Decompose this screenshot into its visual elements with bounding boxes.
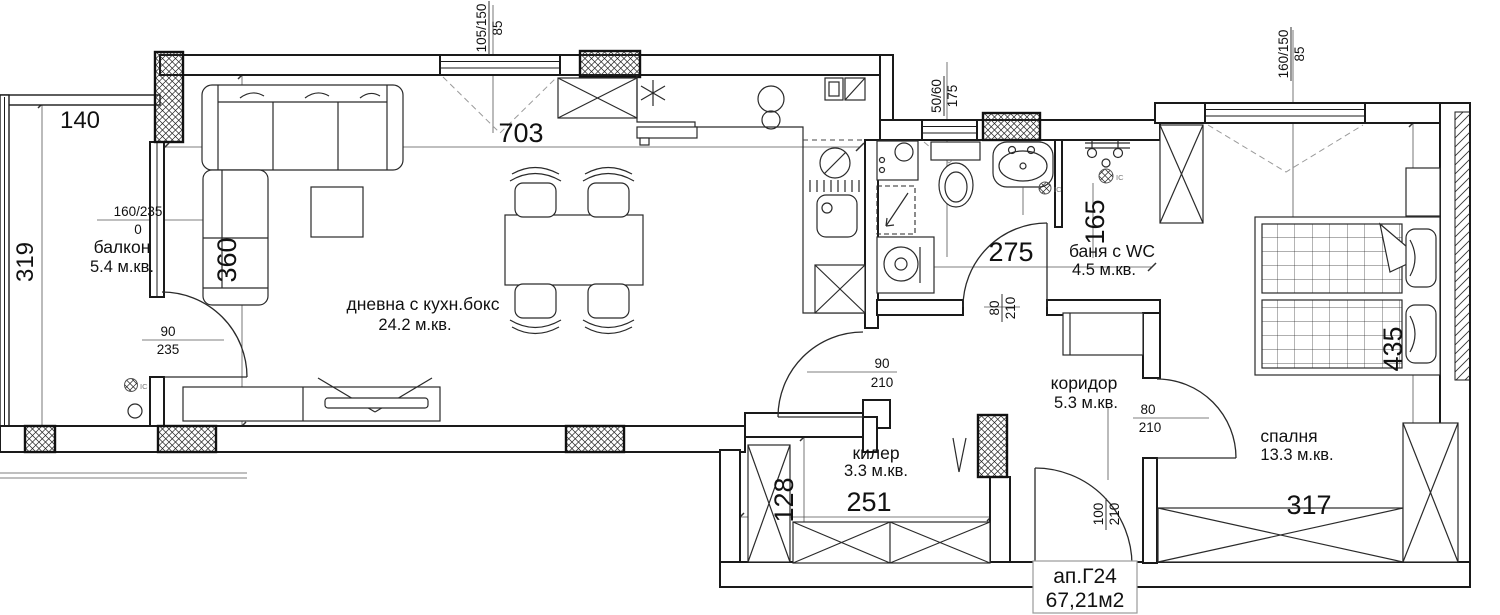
bath-niche-wall (1055, 140, 1062, 227)
floor-plan-drawing: IC IC (0, 0, 1500, 615)
dining-set (505, 168, 643, 334)
pillow (1406, 305, 1436, 363)
counter-front (637, 127, 697, 138)
column (983, 113, 1040, 140)
room-label-balcony: балкон (94, 237, 151, 257)
living-top-wall-left (160, 55, 440, 75)
balcony-door-pier (150, 377, 164, 426)
kitchen-sink-icon (817, 195, 857, 237)
svg-text:80: 80 (987, 300, 1002, 315)
dishwasher-icon (820, 148, 850, 178)
washbasin-icon (993, 142, 1053, 215)
svg-text:160/150: 160/150 (1276, 30, 1291, 79)
bath-top-wall-left (880, 120, 922, 140)
column (158, 426, 216, 452)
coat-hook-icon (953, 438, 966, 472)
svg-text:235: 235 (157, 342, 180, 357)
dim-living-height: 360 (212, 237, 242, 282)
svg-text:80: 80 (1140, 402, 1155, 417)
svg-text:50/60: 50/60 (929, 79, 944, 113)
shoe-cabinet (1063, 313, 1143, 355)
apartment-tag: ап.Г24 67,21м2 (1033, 561, 1137, 613)
label-entry-door: 100 210 (1091, 498, 1122, 530)
svg-text:210: 210 (1107, 503, 1122, 526)
corner-cabinet (877, 141, 918, 180)
drain-icon (128, 404, 142, 418)
wardrobe (1158, 508, 1403, 562)
label-bedroom-door: 80 210 (1139, 402, 1162, 435)
wardrobe (1403, 423, 1458, 562)
label-balcony-door: 90 235 (157, 324, 180, 357)
svg-text:90: 90 (874, 356, 889, 371)
boiler-outlet-icon: IC (1099, 159, 1124, 183)
bedroom-top-wall-left (1155, 103, 1205, 123)
column (566, 426, 624, 452)
column (580, 51, 640, 77)
svg-text:85: 85 (490, 20, 505, 35)
dim-bedroom-width: 317 (1286, 490, 1331, 520)
dim-bedroom-height: 435 (1378, 326, 1408, 371)
svg-text:IC: IC (1054, 185, 1062, 194)
bath-bottom-wall-left (877, 300, 963, 315)
room-label-closet: килер (852, 443, 899, 463)
room-label-living: дневна с кухн.бокс (346, 294, 499, 314)
svg-text:160/235: 160/235 (114, 204, 163, 219)
nightstand (1406, 168, 1440, 216)
room-area-balcony: 5.4 м.кв. (90, 258, 154, 276)
pillow (1406, 229, 1436, 287)
svg-text:100: 100 (1091, 503, 1106, 526)
double-bed (1255, 217, 1440, 375)
dim-living-width: 703 (498, 118, 543, 148)
svg-text:IC: IC (140, 382, 148, 391)
bottom-wall-bedroom (1132, 562, 1470, 587)
outlet-icon (125, 379, 138, 392)
svg-text:105/150: 105/150 (474, 4, 489, 53)
tv (325, 398, 428, 408)
sink-star-icon (641, 80, 665, 106)
label-living-window: 105/150 85 (474, 1, 505, 55)
entry-left-wall (990, 477, 1010, 562)
room-area-bedroom: 13.3 м.кв. (1260, 446, 1333, 464)
balcony-top-wall (0, 95, 160, 105)
wardrobe (1160, 125, 1203, 223)
column (25, 426, 55, 452)
fridge (825, 78, 865, 100)
dish-rack (810, 180, 859, 192)
wardrobe (793, 522, 990, 563)
dim-balcony-height: 319 (12, 242, 39, 282)
toilet-icon (931, 142, 980, 207)
corridor-bedroom-wall-lower (1143, 458, 1157, 563)
burner-icon (762, 111, 780, 129)
corridor-bedroom-wall-upper (1143, 313, 1160, 378)
bottom-wall-closet (720, 562, 1035, 587)
dim-closet-height: 128 (769, 477, 799, 522)
room-area-closet: 3.3 м.кв. (844, 462, 908, 480)
balcony-symbols: IC (125, 379, 149, 419)
svg-text:85: 85 (1292, 46, 1307, 61)
apartment-id: ап.Г24 (1053, 565, 1117, 588)
towel-radiator-icon (1085, 140, 1130, 158)
dim-bath-width: 275 (988, 237, 1033, 267)
closet-left-wall (720, 450, 740, 562)
label-bedroom-window: 160/150 85 (1276, 27, 1307, 81)
label-hall-door: 90 210 (871, 356, 894, 390)
svg-text:210: 210 (871, 375, 894, 390)
bedroom-door (1157, 379, 1236, 458)
apartment-area: 67,21м2 (1046, 589, 1125, 612)
base-cabinet (815, 265, 865, 313)
mattress (1262, 224, 1402, 293)
dim-closet-width: 251 (846, 487, 891, 517)
label-bath-window: 50/60 175 (929, 76, 960, 116)
floor-plan-page: IC IC (0, 0, 1500, 615)
burner-icon (758, 86, 784, 112)
room-area-bath: 4.5 м.кв. (1072, 261, 1136, 279)
svg-text:175: 175 (945, 85, 960, 108)
dim-balcony-width: 140 (60, 107, 100, 134)
room-label-bedroom: спалня (1260, 426, 1317, 446)
washing-machine-icon (877, 237, 934, 293)
outlet-label: IC (1116, 173, 1124, 182)
svg-text:0: 0 (134, 222, 142, 237)
room-area-living: 24.2 м.кв. (378, 316, 451, 334)
column (155, 52, 183, 142)
living-bottom-wall (0, 426, 745, 452)
room-label-corridor: коридор (1051, 373, 1118, 393)
svg-text:210: 210 (1003, 297, 1018, 320)
svg-text:90: 90 (160, 324, 175, 339)
right-wall-insulation (1455, 112, 1470, 380)
column (978, 415, 1007, 477)
coffee-table (311, 187, 363, 237)
shower-icon (877, 186, 915, 234)
room-area-corridor: 5.3 м.кв. (1054, 394, 1118, 412)
tv-cabinet (183, 378, 440, 421)
hall-door (778, 332, 863, 417)
label-bath-door: 80 210 (987, 294, 1018, 322)
svg-text:210: 210 (1139, 420, 1162, 435)
bedroom-window (1205, 103, 1365, 172)
dim-bath-niche: 165 (1080, 199, 1110, 244)
